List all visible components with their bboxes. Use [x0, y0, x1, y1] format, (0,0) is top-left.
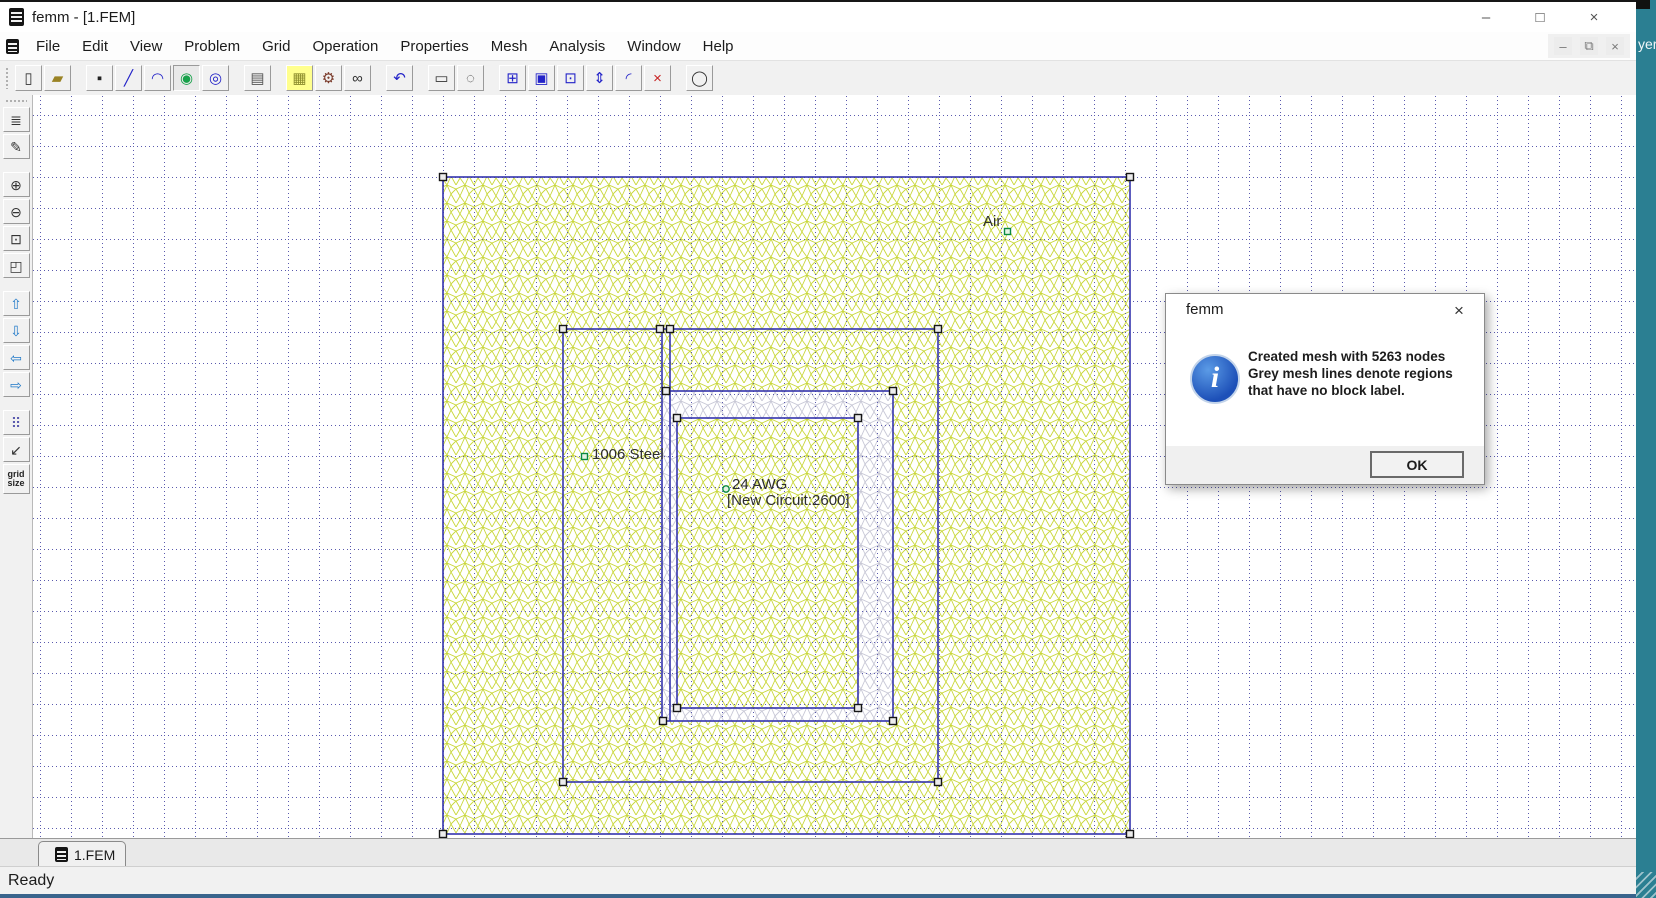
- ok-button[interactable]: OK: [1370, 451, 1464, 478]
- dialog-close-button[interactable]: ×: [1448, 300, 1470, 322]
- toolbar: ▯▰▪╱◠◉◎▤▦⚙∞↶▭◌⊞▣⊡⇕◜×◯: [0, 61, 1636, 96]
- dialog-message-line: that have no block label.: [1248, 382, 1453, 399]
- flip-button[interactable]: ⇕: [586, 65, 613, 91]
- line-segment-icon: ╱: [124, 71, 133, 86]
- dialog-footer: OK: [1166, 446, 1484, 484]
- window-title: femm - [1.FEM]: [32, 9, 135, 26]
- arc-segment-icon: ◠: [151, 71, 164, 86]
- air-region-label: Air: [983, 213, 1001, 230]
- dialog-message-line: Created mesh with 5263 nodes: [1248, 348, 1453, 365]
- minimize-icon: –: [1559, 39, 1566, 54]
- circle-view-button[interactable]: ◯: [686, 65, 713, 91]
- fillet-button[interactable]: ◜: [615, 65, 642, 91]
- background-window-corner: [1636, 0, 1650, 9]
- dialog-message-line: Grey mesh lines denote regions: [1248, 365, 1453, 382]
- group-select-icon: ◎: [209, 71, 222, 86]
- zoom-window-button[interactable]: ◰: [3, 253, 30, 278]
- node-point-icon: ▪: [97, 71, 102, 86]
- mesh-button[interactable]: ▦: [286, 65, 313, 91]
- mesh-result-dialog: femm × i Created mesh with 5263 nodes Gr…: [1165, 293, 1485, 485]
- toolbar-buttons: ▯▰▪╱◠◉◎▤▦⚙∞↶▭◌⊞▣⊡⇕◜×◯: [14, 65, 714, 91]
- title-bar[interactable]: femm - [1.FEM] –□×: [0, 2, 1636, 32]
- dialog-message: Created mesh with 5263 nodes Grey mesh l…: [1248, 348, 1453, 399]
- dialog-body: i Created mesh with 5263 nodes Grey mesh…: [1166, 324, 1484, 446]
- arc-tool-button[interactable]: ◠: [144, 65, 171, 91]
- new-file-icon: ▯: [24, 71, 32, 86]
- delete-x-icon: ×: [653, 71, 662, 86]
- copy-button[interactable]: ▣: [528, 65, 555, 91]
- undo-button[interactable]: ↶: [386, 65, 413, 91]
- steel-region-label: 1006 Steel: [592, 446, 664, 463]
- zoom-in-icon: ⊕: [10, 178, 22, 192]
- new-file-button[interactable]: ▯: [15, 65, 42, 91]
- down-arrow-icon: ⇩: [10, 324, 22, 338]
- glasses-icon: ∞: [352, 71, 363, 86]
- select-circle-button[interactable]: ◌: [457, 65, 484, 91]
- line-tool-button[interactable]: ╱: [115, 65, 142, 91]
- show-grid-button[interactable]: ⠿: [3, 410, 30, 435]
- pan-left-button[interactable]: ⇦: [3, 345, 30, 370]
- tab-1fem[interactable]: 1.FEM: [38, 841, 126, 867]
- dashed-circle-icon: ◌: [466, 71, 475, 86]
- snap-arrow-icon: ↙: [10, 443, 22, 457]
- minimize-button[interactable]: –: [1474, 5, 1498, 29]
- edit-group-button[interactable]: ⊡: [557, 65, 584, 91]
- menu-item-mesh[interactable]: Mesh: [480, 33, 539, 60]
- select-rect-button[interactable]: ▭: [428, 65, 455, 91]
- menu-item-problem[interactable]: Problem: [173, 33, 251, 60]
- properties-icon: ▤: [250, 71, 264, 86]
- circle-icon: ◯: [691, 71, 708, 86]
- right-arrow-icon: ⇨: [10, 378, 22, 392]
- zoom-window-icon: ◰: [9, 259, 22, 273]
- menu-item-analysis[interactable]: Analysis: [538, 33, 616, 60]
- zoom-in-button[interactable]: ⊕: [3, 172, 30, 197]
- copy-icon: ▣: [534, 71, 548, 86]
- zoom-page-icon: ⊡: [10, 232, 22, 246]
- menu-bar: FileEditViewProblemGridOperationProperti…: [0, 32, 1636, 61]
- zoom-out-button[interactable]: ⊖: [3, 199, 30, 224]
- menu-item-window[interactable]: Window: [616, 33, 691, 60]
- mdi-minimize-button[interactable]: –: [1554, 37, 1572, 55]
- sidebar-buttons: ≣✎⊕⊖⊡◰⇧⇩⇦⇨⠿↙grid size: [3, 106, 30, 495]
- left-arrow-icon: ⇦: [10, 351, 22, 365]
- block-label-icon: ◉: [180, 71, 193, 86]
- undo-arrow-icon: ↶: [393, 71, 406, 86]
- tab-label: 1.FEM: [74, 847, 115, 863]
- mdi-close-button[interactable]: ×: [1606, 37, 1624, 55]
- mdi-restore-button[interactable]: ⧉: [1580, 37, 1598, 55]
- menu-item-file[interactable]: File: [25, 33, 71, 60]
- crank-gear-icon: ⚙: [322, 71, 335, 86]
- pan-right-button[interactable]: ⇨: [3, 372, 30, 397]
- femm-app-icon: [9, 8, 24, 26]
- view-results-button[interactable]: ∞: [344, 65, 371, 91]
- doc-edit-icon: ✎: [10, 140, 22, 154]
- restore-icon: ⧉: [1584, 38, 1593, 54]
- mdi-window-controls: –⧉×: [1548, 34, 1630, 58]
- edit-group-icon: ⊡: [564, 71, 577, 86]
- status-text: Ready: [8, 872, 54, 890]
- background-window-strip[interactable]: yer: [1636, 0, 1656, 898]
- menu-items: FileEditViewProblemGridOperationProperti…: [25, 33, 745, 60]
- move-button[interactable]: ⊞: [499, 65, 526, 91]
- background-window-text: yer: [1638, 36, 1656, 52]
- up-arrow-icon: ⇧: [10, 297, 22, 311]
- status-bar: Ready: [0, 866, 1636, 895]
- close-icon: ×: [1611, 39, 1619, 54]
- point-tool-button[interactable]: ▪: [86, 65, 113, 91]
- taskbar-edge: [0, 894, 1656, 898]
- close-button[interactable]: ×: [1582, 5, 1606, 29]
- delete-button[interactable]: ×: [644, 65, 671, 91]
- menu-item-edit[interactable]: Edit: [71, 33, 119, 60]
- info-icon: i: [1190, 354, 1240, 404]
- document-tab-icon: [55, 847, 68, 862]
- document-icon: [6, 39, 19, 54]
- snap-grid-button[interactable]: ↙: [3, 437, 30, 462]
- fillet-corner-icon: ◜: [626, 71, 632, 86]
- document-tab-bar: 1.FEM: [0, 838, 1636, 867]
- menu-item-properties[interactable]: Properties: [389, 33, 479, 60]
- minimize-icon: –: [1482, 10, 1490, 25]
- menu-item-view[interactable]: View: [119, 33, 173, 60]
- zoom-out-icon: ⊖: [10, 205, 22, 219]
- menu-item-help[interactable]: Help: [692, 33, 745, 60]
- info-icon-letter: i: [1211, 363, 1219, 393]
- zoom-extents-button[interactable]: ⊡: [3, 226, 30, 251]
- pan-down-button[interactable]: ⇩: [3, 318, 30, 343]
- properties-button[interactable]: ▤: [244, 65, 271, 91]
- grid-size-label: grid size: [7, 470, 24, 488]
- femm-main-frame: femm - [1.FEM] –□× FileEditViewProblemGr…: [0, 0, 1636, 898]
- flip-icon: ⇕: [593, 71, 606, 86]
- dialog-title-bar[interactable]: femm: [1166, 294, 1484, 324]
- menu-item-operation[interactable]: Operation: [301, 33, 389, 60]
- maximize-button[interactable]: □: [1528, 5, 1552, 29]
- coil-region-label: 24 AWG: [732, 476, 787, 493]
- grid-dots-icon: ⠿: [11, 416, 21, 430]
- sidebar-drag-handle[interactable]: [5, 99, 27, 103]
- edit-doc-button[interactable]: ✎: [3, 134, 30, 159]
- femm-application-window: femm - [1.FEM] –□× FileEditViewProblemGr…: [0, 0, 1656, 898]
- import-button[interactable]: ≣: [3, 107, 30, 132]
- grid-size-button[interactable]: grid size: [3, 464, 30, 494]
- toolbar-drag-handle[interactable]: [5, 67, 9, 89]
- open-file-button[interactable]: ▰: [44, 65, 71, 91]
- window-controls: –□×: [1474, 2, 1606, 32]
- group-tool-button[interactable]: ◎: [202, 65, 229, 91]
- run-analysis-button[interactable]: ⚙: [315, 65, 342, 91]
- pan-up-button[interactable]: ⇧: [3, 291, 30, 316]
- resize-grip-icon[interactable]: [1636, 872, 1656, 898]
- block-label-tool-button[interactable]: ◉: [173, 65, 200, 91]
- close-icon: ×: [1590, 10, 1599, 25]
- doc-list-icon: ≣: [10, 113, 22, 127]
- move-icon: ⊞: [506, 71, 519, 86]
- mesh-grid-icon: ▦: [292, 71, 306, 86]
- side-toolbar: ≣✎⊕⊖⊡◰⇧⇩⇦⇨⠿↙grid size: [0, 95, 33, 838]
- dialog-title: femm: [1186, 301, 1224, 318]
- maximize-icon: □: [1535, 10, 1544, 25]
- menu-item-grid[interactable]: Grid: [251, 33, 301, 60]
- dashed-rect-icon: ▭: [434, 71, 448, 86]
- open-folder-icon: ▰: [52, 71, 64, 86]
- coil-circuit-label: [New Circuit:2600]: [727, 492, 850, 509]
